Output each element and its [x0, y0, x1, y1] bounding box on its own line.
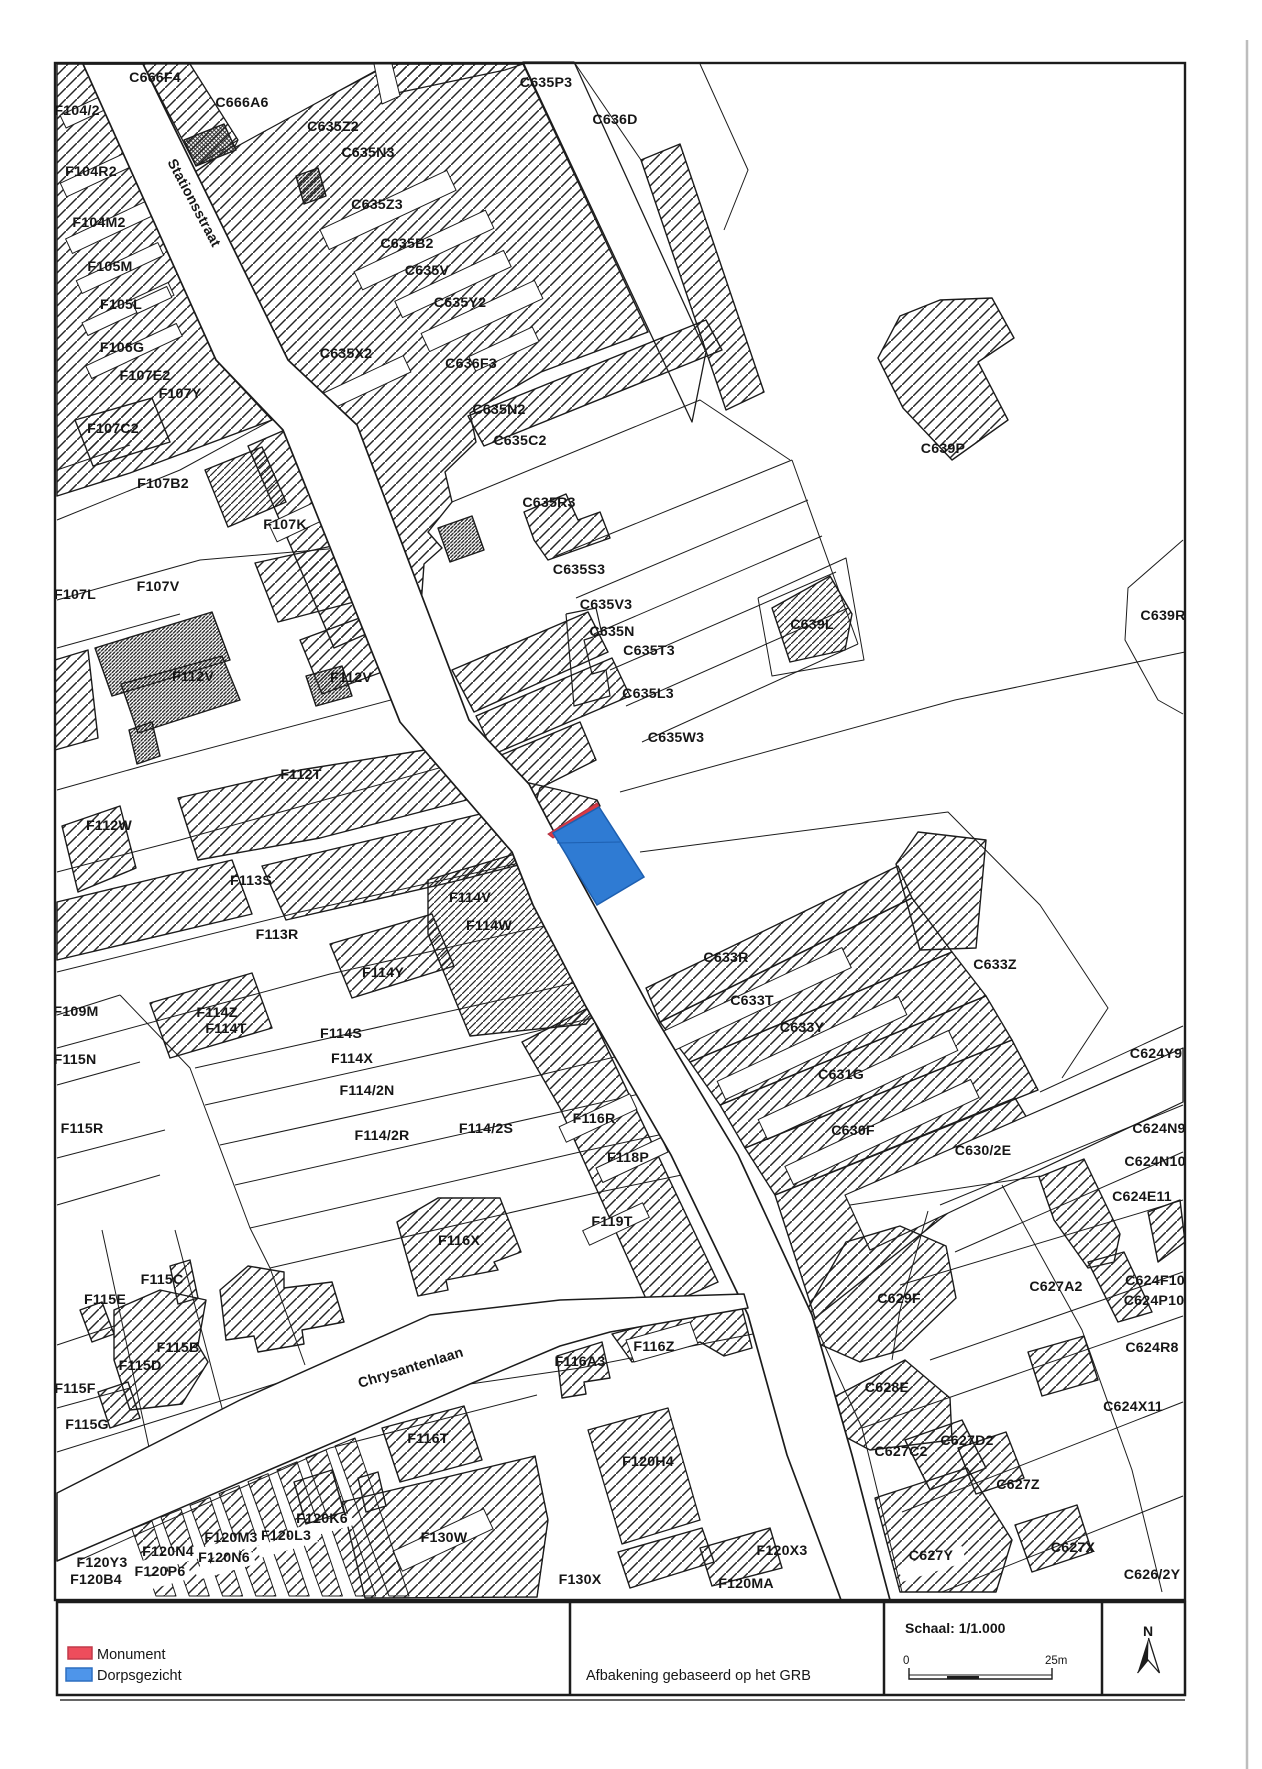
svg-text:C633T: C633T — [730, 993, 774, 1009]
svg-text:F114Y: F114Y — [362, 965, 404, 981]
svg-text:C635X2: C635X2 — [320, 346, 372, 362]
svg-text:F107V: F107V — [137, 579, 180, 595]
svg-text:F116A3: F116A3 — [555, 1354, 606, 1370]
svg-text:C666A6: C666A6 — [215, 95, 268, 111]
svg-text:F115F: F115F — [54, 1381, 95, 1397]
svg-text:F116T: F116T — [407, 1431, 448, 1447]
svg-text:C635R3: C635R3 — [522, 495, 575, 511]
svg-text:C624X11: C624X11 — [1103, 1399, 1163, 1415]
svg-text:C635Y2: C635Y2 — [434, 295, 486, 311]
svg-text:F114T: F114T — [205, 1021, 246, 1037]
svg-text:F130X: F130X — [559, 1572, 602, 1588]
svg-text:F120M3: F120M3 — [204, 1530, 257, 1546]
svg-text:C627C2: C627C2 — [874, 1444, 927, 1460]
svg-text:C635W3: C635W3 — [648, 730, 704, 746]
svg-text:F115C: F115C — [141, 1272, 184, 1288]
svg-text:F115R: F115R — [61, 1121, 104, 1137]
svg-text:C627X: C627X — [1051, 1540, 1096, 1556]
svg-text:C635Z3: C635Z3 — [351, 197, 403, 213]
svg-text:F130W: F130W — [421, 1530, 468, 1546]
svg-text:C624F10: C624F10 — [1125, 1273, 1185, 1289]
svg-text:C666F4: C666F4 — [129, 70, 181, 86]
svg-text:C639P: C639P — [921, 441, 965, 457]
svg-text:F115G: F115G — [65, 1417, 109, 1433]
svg-text:F104/2: F104/2 — [54, 103, 99, 119]
svg-text:C628E: C628E — [865, 1380, 909, 1396]
svg-text:F109M: F109M — [53, 1004, 98, 1020]
svg-text:F112V: F112V — [330, 670, 372, 686]
svg-text:C635B2: C635B2 — [380, 236, 433, 252]
svg-text:F116X: F116X — [438, 1233, 480, 1249]
svg-text:F120MA: F120MA — [718, 1576, 774, 1592]
svg-text:F107K: F107K — [263, 517, 307, 533]
svg-text:C635N3: C635N3 — [341, 145, 394, 161]
svg-text:C633R: C633R — [703, 950, 748, 966]
svg-text:C635C2: C635C2 — [493, 433, 546, 449]
svg-text:N: N — [1143, 1623, 1153, 1639]
svg-text:F120B4: F120B4 — [70, 1572, 122, 1588]
svg-text:F119T: F119T — [591, 1214, 632, 1230]
svg-text:C627Z: C627Z — [996, 1477, 1040, 1493]
svg-text:F107E2: F107E2 — [120, 368, 171, 384]
svg-text:C633Z: C633Z — [973, 957, 1017, 973]
svg-text:F105M: F105M — [87, 259, 132, 275]
svg-text:F114Z: F114Z — [196, 1005, 237, 1021]
svg-text:C635Z2: C635Z2 — [307, 119, 359, 135]
svg-text:F120K6: F120K6 — [296, 1511, 348, 1527]
svg-text:C624N9: C624N9 — [1132, 1121, 1185, 1137]
svg-text:Schaal: 1/1.000: Schaal: 1/1.000 — [905, 1620, 1006, 1636]
svg-text:F107B2: F107B2 — [137, 476, 189, 492]
svg-text:C635N2: C635N2 — [472, 402, 525, 418]
svg-text:F112T: F112T — [280, 767, 321, 783]
svg-text:F115N: F115N — [54, 1052, 97, 1068]
svg-text:C635V: C635V — [405, 263, 450, 279]
svg-text:C630/2E: C630/2E — [955, 1143, 1012, 1159]
svg-text:C635S3: C635S3 — [553, 562, 605, 578]
svg-text:F106G: F106G — [100, 340, 144, 356]
svg-text:C639L: C639L — [790, 617, 834, 633]
svg-text:F112W: F112W — [86, 818, 132, 834]
svg-text:F114X: F114X — [331, 1051, 373, 1067]
svg-text:C627D2: C627D2 — [940, 1433, 993, 1449]
svg-text:F120P6: F120P6 — [135, 1564, 186, 1580]
svg-text:C624R8: C624R8 — [1125, 1340, 1178, 1356]
svg-text:F115E: F115E — [84, 1292, 126, 1308]
svg-text:Afbakening gebaseerd op het GR: Afbakening gebaseerd op het GRB — [586, 1668, 811, 1684]
svg-text:F104R2: F104R2 — [65, 164, 117, 180]
svg-text:C624E11: C624E11 — [1112, 1189, 1172, 1205]
svg-text:F114/2S: F114/2S — [459, 1121, 513, 1137]
svg-text:F116R: F116R — [573, 1111, 616, 1127]
svg-text:F114V: F114V — [449, 890, 491, 906]
svg-text:F120L3: F120L3 — [261, 1528, 311, 1544]
svg-text:Dorpsgezicht: Dorpsgezicht — [97, 1668, 182, 1684]
svg-text:F120N4: F120N4 — [142, 1544, 194, 1560]
svg-text:F120N6: F120N6 — [198, 1550, 250, 1566]
svg-text:F116Z: F116Z — [633, 1339, 674, 1355]
svg-text:F114/2N: F114/2N — [339, 1083, 394, 1099]
svg-text:F107C2: F107C2 — [87, 421, 139, 437]
svg-text:F114W: F114W — [466, 918, 512, 934]
svg-text:C624Y9: C624Y9 — [1130, 1046, 1182, 1062]
svg-text:F114S: F114S — [320, 1026, 362, 1042]
svg-text:25m: 25m — [1045, 1655, 1067, 1667]
svg-text:F115B: F115B — [157, 1340, 200, 1356]
svg-text:F104M2: F104M2 — [72, 215, 125, 231]
svg-text:F120X3: F120X3 — [757, 1543, 808, 1559]
svg-text:C624N10: C624N10 — [1124, 1154, 1185, 1170]
svg-text:C624P10: C624P10 — [1124, 1293, 1185, 1309]
svg-text:F112V: F112V — [172, 669, 214, 685]
svg-text:F113S: F113S — [230, 873, 272, 889]
svg-text:C635V3: C635V3 — [580, 597, 632, 613]
svg-text:C636F3: C636F3 — [445, 356, 497, 372]
svg-text:C639R: C639R — [1140, 608, 1185, 624]
svg-text:Monument: Monument — [97, 1647, 166, 1663]
svg-text:C635L3: C635L3 — [622, 686, 674, 702]
svg-text:C629F: C629F — [877, 1291, 921, 1307]
svg-text:F107Y: F107Y — [159, 386, 202, 402]
svg-text:C631G: C631G — [818, 1067, 864, 1083]
svg-text:F120H4: F120H4 — [622, 1454, 674, 1470]
svg-text:C636D: C636D — [592, 112, 637, 128]
svg-text:F120Y3: F120Y3 — [77, 1555, 128, 1571]
svg-text:C635N: C635N — [589, 624, 634, 640]
svg-text:C630F: C630F — [831, 1123, 875, 1139]
svg-text:F115D: F115D — [119, 1358, 162, 1374]
svg-text:C627Y: C627Y — [909, 1548, 954, 1564]
svg-text:C635P3: C635P3 — [520, 75, 572, 91]
svg-text:0: 0 — [903, 1655, 909, 1667]
svg-text:F114/2R: F114/2R — [354, 1128, 409, 1144]
svg-text:F118P: F118P — [607, 1150, 649, 1166]
svg-text:C627A2: C627A2 — [1029, 1279, 1082, 1295]
svg-text:F113R: F113R — [256, 927, 299, 943]
svg-text:F105L: F105L — [100, 297, 142, 313]
svg-text:C626/2Y: C626/2Y — [1124, 1567, 1181, 1583]
svg-text:F107L: F107L — [54, 587, 96, 603]
svg-text:C635T3: C635T3 — [623, 643, 675, 659]
svg-text:C633Y: C633Y — [780, 1020, 825, 1036]
